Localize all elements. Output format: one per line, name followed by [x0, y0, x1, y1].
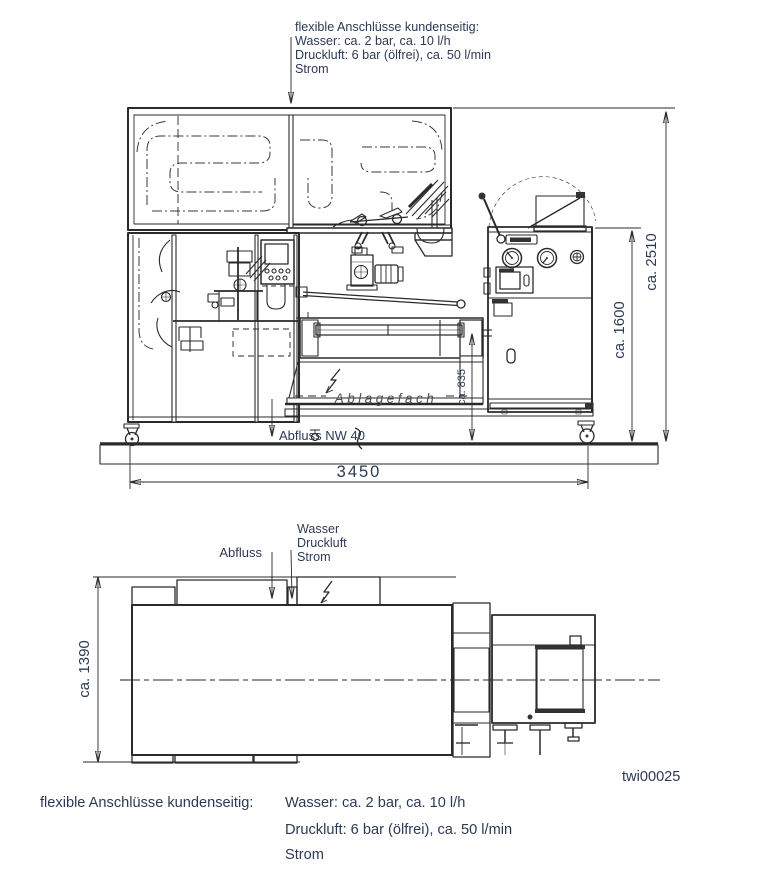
mounting-feet — [455, 723, 582, 755]
note-line: flexible Anschlüsse kundenseitig: — [295, 20, 479, 34]
transfer-conveyor — [300, 318, 483, 358]
heat-exchanger-fins — [537, 649, 583, 709]
storage-shelf: Ablagefach — [285, 356, 593, 416]
dimension-width: 3450 — [130, 446, 588, 489]
caster-wheel-icon — [578, 421, 594, 443]
top-connection-note: flexible Anschlüsse kundenseitig: Wasser… — [291, 20, 491, 103]
dimension-label: ca. 2510 — [643, 233, 660, 291]
note-line: Wasser: ca. 2 bar, ca. 10 l/h — [285, 795, 465, 811]
panel-buttons — [265, 269, 290, 280]
drawing-number: twi00025 — [622, 769, 680, 785]
hood-mullion — [289, 115, 293, 228]
control-panel — [261, 240, 294, 309]
dimension-label: ca. 835 — [456, 369, 468, 405]
outfeed-section — [287, 225, 452, 256]
dimension-depth: ca. 1390 — [76, 577, 98, 762]
bottom-connection-note: flexible Anschlüsse kundenseitig: Wasser… — [40, 795, 512, 863]
door-handle — [507, 349, 515, 363]
valve-knob-icon — [571, 251, 584, 264]
dimension-label: 3450 — [337, 463, 382, 481]
note-line: Druckluft: 6 bar (ölfrei), ca. 50 l/min — [295, 48, 491, 62]
drain-label: Abfluss NW 40 — [279, 428, 365, 443]
connection-label: Druckluft — [297, 536, 347, 550]
ground-line — [100, 444, 658, 465]
plan-drain-callout: Abfluss — [219, 545, 272, 598]
cable-conduit — [267, 284, 285, 309]
dimension-label: ca. 1390 — [76, 640, 93, 698]
dimension-cabinet-height: ca. 1600 — [595, 228, 641, 441]
drive-unit — [347, 248, 403, 290]
dimension-total-height: ca. 2510 — [453, 108, 675, 441]
drain-label: Abfluss — [219, 545, 262, 560]
cabinet-display — [496, 267, 533, 293]
motor-icon — [375, 265, 398, 283]
machine-body — [128, 233, 308, 422]
lever-handle — [479, 193, 506, 244]
shelf-label: Ablagefach — [334, 391, 438, 406]
plan-connections-callout: Wasser Druckluft Strom — [291, 522, 347, 598]
dimension-label: ca. 1600 — [611, 301, 628, 359]
door-swing-line — [139, 238, 153, 349]
plan-machine-outline — [120, 577, 660, 763]
connection-label: Wasser — [297, 522, 339, 536]
note-line: Wasser: ca. 2 bar, ca. 10 l/h — [295, 34, 451, 48]
note-line: Strom — [295, 62, 329, 76]
supply-cabinet — [479, 177, 597, 443]
pressure-gauge-icon — [503, 249, 522, 268]
panel-screen — [265, 244, 288, 264]
machine-installation-drawing: flexible Anschlüsse kundenseitig: Wasser… — [0, 0, 761, 889]
note-line: Druckluft: 6 bar (ölfrei), ca. 50 l/min — [285, 822, 512, 838]
pressure-gauge-icon — [538, 249, 557, 268]
connection-label: Strom — [297, 550, 331, 564]
electrical-symbol-icon — [326, 369, 340, 393]
hood-enclosure — [128, 108, 451, 230]
front-elevation-view: Ablagefach — [100, 108, 675, 489]
note-label: flexible Anschlüsse kundenseitig: — [40, 795, 253, 811]
plan-supply-cabinet — [455, 615, 595, 755]
inclined-feed-rail — [296, 287, 465, 308]
hood-glass-hatch — [406, 180, 449, 218]
electrical-symbol-icon — [321, 581, 332, 603]
drawing-page: flexible Anschlüsse kundenseitig: Wasser… — [0, 0, 761, 889]
top-plan-view: Abfluss Wasser Druckluft Strom ca. 1390 — [76, 522, 660, 763]
note-line: Strom — [285, 847, 324, 863]
caster-wheel-icon — [124, 424, 139, 446]
